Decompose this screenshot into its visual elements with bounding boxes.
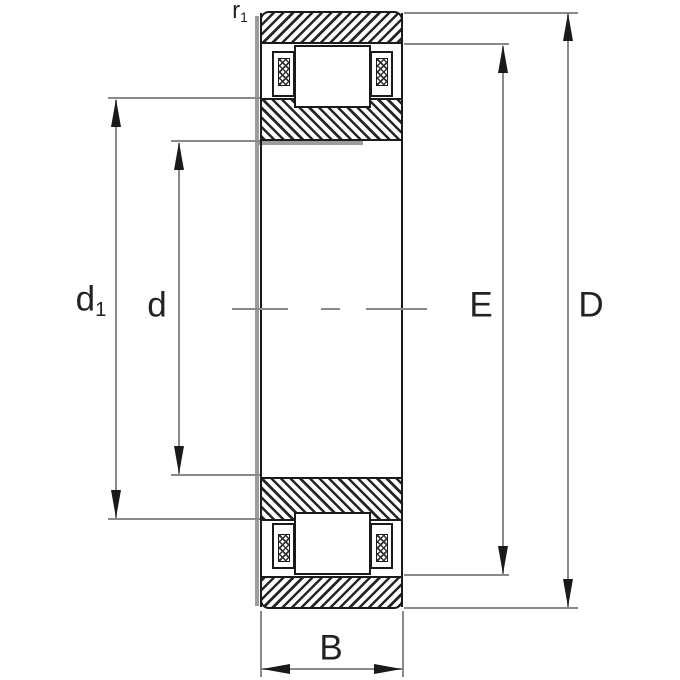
d1-extension-line-top xyxy=(108,97,260,99)
center-line-segment xyxy=(232,308,288,310)
center-line-segment xyxy=(366,308,427,310)
d-arrow-down-icon xyxy=(174,446,184,474)
outer-ring-bottom-section xyxy=(260,576,403,609)
b-arrow-right-icon xyxy=(374,664,402,674)
dd-label: D xyxy=(578,288,603,323)
e-extension-line-top xyxy=(404,43,509,45)
e-arrow-up-icon xyxy=(498,45,508,73)
d-extension-line-bottom xyxy=(171,474,260,476)
d1-label: d1 xyxy=(76,282,107,321)
d-extension-line-top xyxy=(171,140,260,142)
roller-top xyxy=(294,45,371,108)
e-label: E xyxy=(469,288,492,323)
center-line-segment xyxy=(321,308,340,310)
cage-bar-top-right xyxy=(376,58,388,86)
dd-dimension-line xyxy=(567,14,569,607)
cage-bar-bottom-left xyxy=(278,534,290,562)
b-arrow-left-icon xyxy=(262,664,290,674)
d1-arrow-down-icon xyxy=(111,490,121,518)
bore-shadow-line xyxy=(255,141,363,145)
cage-bar-top-left xyxy=(278,58,290,86)
d1-arrow-up-icon xyxy=(111,99,121,127)
b-extension-line-right xyxy=(402,611,404,677)
d-dimension-line xyxy=(178,143,180,476)
bearing-drawing: d1 d E D B r1 xyxy=(0,0,680,680)
dd-arrow-down-icon xyxy=(563,579,573,607)
d-label: d xyxy=(147,288,166,323)
e-arrow-down-icon xyxy=(498,546,508,574)
dd-extension-line-top xyxy=(404,12,578,14)
d-arrow-up-icon xyxy=(174,142,184,170)
dd-arrow-up-icon xyxy=(563,13,573,41)
dd-extension-line-bottom xyxy=(404,607,578,609)
b-label: B xyxy=(319,631,342,666)
outer-ring-top-section xyxy=(260,11,403,44)
d1-extension-line-bottom xyxy=(108,518,260,520)
e-extension-line-bottom xyxy=(404,574,509,576)
d1-dimension-line xyxy=(115,100,117,519)
roller-bottom xyxy=(294,512,371,575)
r1-label: r1 xyxy=(232,0,248,25)
e-dimension-line xyxy=(502,46,504,574)
cage-bar-bottom-right xyxy=(376,534,388,562)
